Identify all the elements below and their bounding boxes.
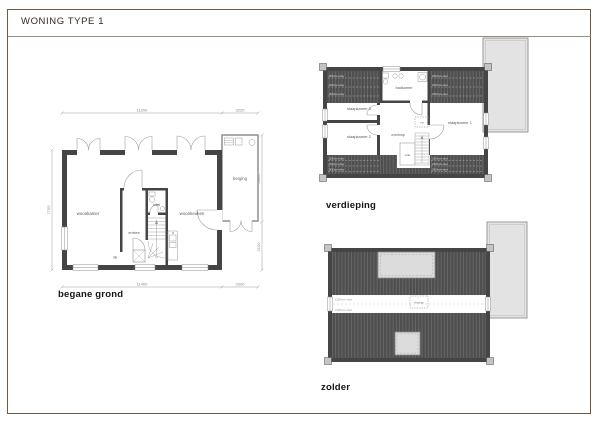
room-label-toilet: toilet xyxy=(153,203,160,207)
room-label-vide: vide xyxy=(405,153,411,157)
roof-window-top xyxy=(378,252,435,278)
roof-window-bottom xyxy=(395,332,420,355)
room-label-entree: entree xyxy=(128,230,140,235)
height-label: 2200mm+vloer xyxy=(432,84,448,87)
dim-top-main: 11200 xyxy=(137,107,149,112)
height-label: 1500mm+vloer xyxy=(432,158,448,161)
mk-cupboard xyxy=(133,250,145,262)
dim-bottom-berging: 2000 xyxy=(236,281,246,286)
height-label: 2200mm+vloer xyxy=(329,163,345,166)
staircase xyxy=(415,133,429,165)
floor-plan-verdieping: 2600mm+vloer 2200mm+vloer 1500mm+vloer 2… xyxy=(315,25,545,195)
floor-label-verdieping: verdieping xyxy=(326,200,376,211)
height-label: 2600mm+vloer xyxy=(432,75,448,78)
room-label-woonkamer: woonkamer xyxy=(77,211,100,216)
height-label: 1500mm+vloer xyxy=(335,298,352,302)
height-label: 2200mm+vloer xyxy=(329,84,345,87)
label-mv: mv xyxy=(420,121,424,125)
room-label-slaapkamer3: slaapkamer 3 xyxy=(347,106,372,111)
floor-plan-begane-grond: 11200 3220 11400 2000 7700 5000 2100 ber… xyxy=(40,100,275,300)
vlizotrap-box: vlizotrap xyxy=(410,296,428,308)
height-label: 2600mm+vloer xyxy=(329,75,345,78)
page-title: WONING TYPE 1 xyxy=(21,16,104,27)
room-label-berging: berging xyxy=(233,176,248,181)
staircase xyxy=(148,218,166,258)
height-line-labels: 1500mm+vloer 1500mm+vloer xyxy=(335,298,352,313)
neighbor-panel xyxy=(487,222,527,318)
label-vlizotrap: vlizotrap xyxy=(414,301,424,305)
floor-label-begane-grond: begane grond xyxy=(58,289,123,300)
height-label: 1500mm+vloer xyxy=(329,158,345,161)
berging-outline xyxy=(222,135,258,232)
interior-walls xyxy=(120,188,168,265)
room-label-mk: mk xyxy=(113,256,118,260)
height-label: 1500mm+vloer xyxy=(335,308,352,312)
bathroom-fixtures xyxy=(383,73,428,85)
height-label: 2200mm+vloer xyxy=(432,163,448,166)
interior-door-swings xyxy=(124,170,158,250)
height-label: 2600mm+vloer xyxy=(329,169,345,172)
room-label-badkamer: badkamer xyxy=(396,86,414,90)
neighbor-panel xyxy=(483,38,528,132)
height-label: 2600mm+vloer xyxy=(432,169,448,172)
kitchen-counter xyxy=(168,231,178,260)
room-label-slaapkamer1: slaapkamer 1 xyxy=(448,120,473,125)
room-label-overloop: overloop xyxy=(391,133,404,137)
floor-plan-zolder: vlizotrap 1500mm+vloer 1500mm+vloer xyxy=(315,215,545,375)
height-label: 1500mm+vloer xyxy=(432,93,448,96)
dim-bottom-main: 11400 xyxy=(137,281,149,286)
dim-right-lower: 2100 xyxy=(256,242,261,252)
height-label: 1500mm+vloer xyxy=(329,93,345,96)
room-label-slaapkamer2: slaapkamer 2 xyxy=(347,134,372,139)
dim-left: 7700 xyxy=(46,205,51,215)
windows xyxy=(62,210,223,271)
room-label-woonkeuken: woonkeuken xyxy=(180,211,205,216)
dim-top-berging: 3220 xyxy=(236,107,246,112)
mv-box: mv xyxy=(415,117,429,127)
floor-label-zolder: zolder xyxy=(321,382,350,393)
room-labels: woonkamer woonkeuken entree toilet mk xyxy=(77,203,205,260)
